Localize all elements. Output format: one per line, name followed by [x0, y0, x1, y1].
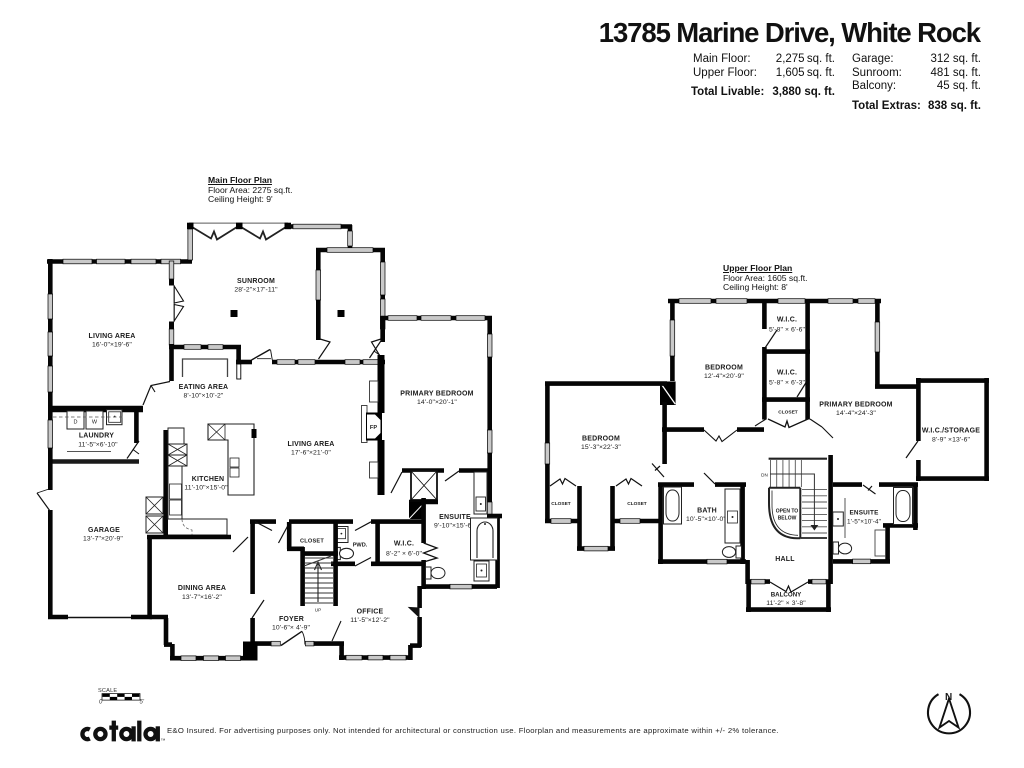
svg-text:11'-5"×12'-2": 11'-5"×12'-2": [350, 617, 390, 624]
svg-text:8'-10"×10'-2": 8'-10"×10'-2": [184, 393, 224, 400]
svg-text:10'-5"×10'-0": 10'-5"×10'-0": [686, 516, 726, 523]
svg-text:SCALE: SCALE: [98, 688, 117, 694]
svg-text:ENSUITE: ENSUITE: [849, 510, 879, 517]
svg-text:FP: FP: [370, 425, 377, 431]
svg-text:D: D: [74, 420, 78, 426]
svg-text:11'-5"×6'-10": 11'-5"×6'-10": [78, 442, 118, 449]
svg-text:10'-6"× 4'-9": 10'-6"× 4'-9": [272, 625, 310, 632]
svg-text:5'-8" × 6'-3": 5'-8" × 6'-3": [769, 380, 806, 387]
svg-text:CLOSET: CLOSET: [627, 501, 647, 507]
svg-text:PWD.: PWD.: [353, 543, 368, 549]
svg-text:LIVING AREA: LIVING AREA: [88, 333, 135, 340]
svg-text:8'-9" ×13'-6": 8'-9" ×13'-6": [932, 437, 970, 444]
svg-text:BATH: BATH: [697, 508, 717, 515]
svg-text:GARAGE: GARAGE: [88, 527, 120, 534]
svg-text:1'-5"×10'-4": 1'-5"×10'-4": [847, 519, 881, 526]
svg-text:OFFICE: OFFICE: [357, 609, 384, 616]
svg-text:OPEN TO: OPEN TO: [776, 509, 799, 515]
svg-text:BEDROOM: BEDROOM: [705, 365, 743, 372]
svg-text:ENSUITE: ENSUITE: [439, 514, 471, 521]
svg-text:PRIMARY BEDROOM: PRIMARY BEDROOM: [819, 402, 892, 409]
svg-text:FOYER: FOYER: [279, 616, 304, 623]
svg-text:11'-10"×15'-0": 11'-10"×15'-0": [184, 485, 228, 492]
svg-text:15'-3"×22'-3": 15'-3"×22'-3": [581, 444, 621, 451]
svg-text:16'-0"×19'-6": 16'-0"×19'-6": [92, 342, 132, 349]
svg-text:LIVING AREA: LIVING AREA: [287, 441, 334, 448]
svg-text:28'-2"×17'-11": 28'-2"×17'-11": [234, 287, 278, 294]
svg-text:W.I.C.: W.I.C.: [777, 370, 797, 377]
svg-text:12'-4"×20'-9": 12'-4"×20'-9": [704, 373, 744, 380]
svg-text:11'-2" × 3'-8": 11'-2" × 3'-8": [766, 600, 806, 607]
svg-text:9'-10"×15'-6": 9'-10"×15'-6": [434, 523, 474, 530]
svg-text:13'-7"×16'-2": 13'-7"×16'-2": [182, 594, 222, 601]
svg-text:14'-4"×24'-3": 14'-4"×24'-3": [836, 410, 876, 417]
svg-text:CLOSET: CLOSET: [778, 410, 798, 416]
svg-text:14'-0"×20'-1": 14'-0"×20'-1": [417, 399, 457, 406]
svg-text:DINING AREA: DINING AREA: [178, 585, 226, 592]
svg-text:8'-2" × 6'-0": 8'-2" × 6'-0": [386, 551, 423, 558]
svg-text:17'-6"×21'-0": 17'-6"×21'-0": [291, 450, 331, 457]
svg-text:BALCONY: BALCONY: [771, 592, 802, 599]
svg-text:SUNROOM: SUNROOM: [237, 278, 275, 285]
svg-text:W.I.C.: W.I.C.: [777, 317, 797, 324]
svg-text:W.I.C.: W.I.C.: [394, 541, 414, 548]
svg-text:5'-8" × 6'-6": 5'-8" × 6'-6": [769, 327, 806, 334]
svg-text:W: W: [92, 420, 98, 426]
svg-text:CLOSET: CLOSET: [551, 501, 571, 507]
svg-text:UP: UP: [315, 608, 321, 613]
svg-text:KITCHEN: KITCHEN: [192, 476, 225, 483]
svg-text:BEDROOM: BEDROOM: [582, 436, 620, 443]
svg-text:EATING AREA: EATING AREA: [179, 384, 229, 391]
svg-text:DN: DN: [761, 473, 768, 478]
svg-text:LAUNDRY: LAUNDRY: [79, 433, 114, 440]
svg-text:HALL: HALL: [775, 556, 795, 563]
svg-text:BELOW: BELOW: [778, 516, 797, 522]
svg-text:5': 5': [140, 700, 145, 706]
svg-text:W.I.C./STORAGE: W.I.C./STORAGE: [922, 428, 980, 435]
svg-text:CLOSET: CLOSET: [300, 539, 324, 545]
svg-text:PRIMARY BEDROOM: PRIMARY BEDROOM: [400, 391, 473, 398]
svg-text:13'-7"×20'-9": 13'-7"×20'-9": [83, 536, 123, 543]
